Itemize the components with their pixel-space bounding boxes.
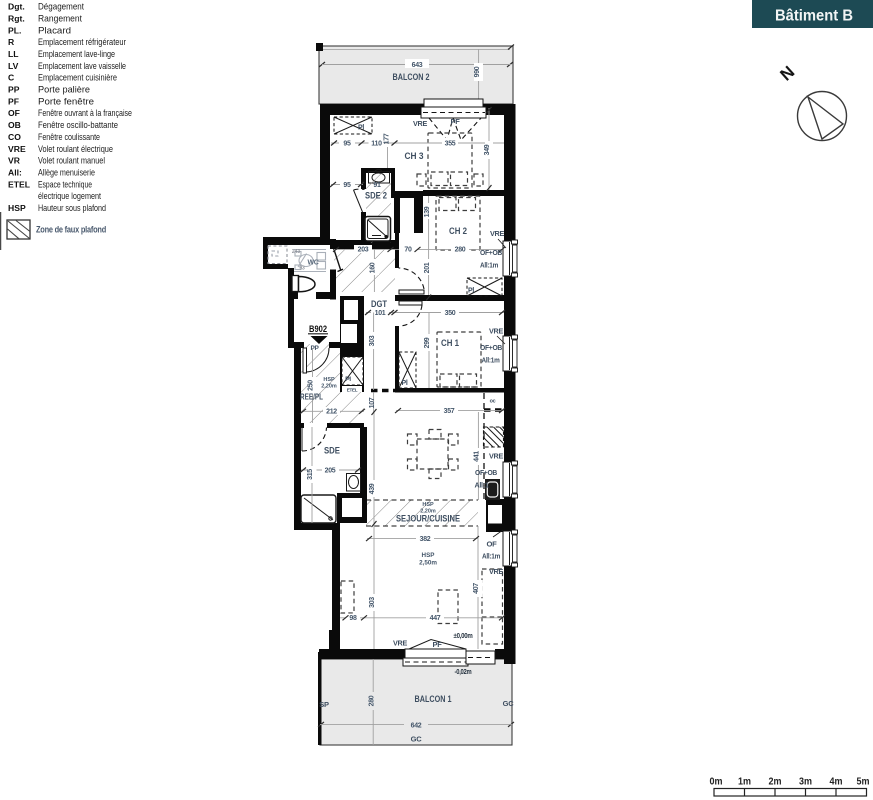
svg-text:407: 407	[473, 583, 480, 594]
svg-text:250: 250	[308, 380, 315, 391]
svg-text:447: 447	[430, 615, 441, 622]
svg-text:All:1m: All:1m	[482, 356, 501, 365]
svg-text:Placard: Placard	[38, 25, 71, 35]
svg-text:BALCON 2: BALCON 2	[393, 72, 430, 83]
svg-text:439: 439	[369, 483, 376, 494]
svg-text:électrique logement: électrique logement	[38, 191, 101, 201]
svg-text:WC: WC	[307, 260, 318, 267]
svg-text:VRE: VRE	[490, 229, 504, 238]
svg-text:350: 350	[445, 310, 456, 317]
svg-text:HSP: HSP	[323, 377, 335, 383]
svg-text:HSP: HSP	[422, 552, 435, 559]
svg-text:Fenêtre coulissante: Fenêtre coulissante	[38, 132, 100, 142]
svg-text:C: C	[8, 73, 14, 83]
svg-text:Pl: Pl	[345, 376, 351, 383]
svg-text:382: 382	[420, 536, 431, 543]
svg-text:PL.: PL.	[8, 25, 21, 35]
svg-text:643: 643	[412, 62, 423, 69]
svg-text:VRE: VRE	[413, 119, 427, 128]
svg-text:441: 441	[474, 451, 481, 462]
svg-text:SEJOUR/CUISINE: SEJOUR/CUISINE	[396, 514, 460, 525]
svg-text:3m: 3m	[799, 776, 812, 788]
svg-text:0m: 0m	[710, 776, 723, 788]
svg-text:357: 357	[444, 408, 455, 415]
svg-text:160: 160	[370, 262, 377, 273]
svg-text:HSP: HSP	[8, 203, 26, 213]
svg-text:All:1m: All:1m	[480, 261, 499, 270]
svg-text:Fenêtre ouvrant à la française: Fenêtre ouvrant à la française	[38, 108, 132, 118]
svg-text:PP: PP	[8, 85, 20, 95]
svg-text:201: 201	[424, 262, 431, 273]
svg-text:GC: GC	[411, 735, 423, 744]
svg-text:VRE: VRE	[393, 639, 407, 648]
svg-text:-0,02m: -0,02m	[455, 669, 472, 676]
svg-text:HSP: HSP	[422, 502, 434, 508]
svg-text:Allège menuiserie: Allège menuiserie	[38, 168, 95, 178]
svg-text:70: 70	[404, 247, 412, 254]
svg-text:Pl: Pl	[468, 288, 474, 295]
svg-text:Emplacement lave-linge: Emplacement lave-linge	[38, 49, 115, 59]
svg-text:107: 107	[369, 397, 376, 408]
svg-text:SP: SP	[319, 700, 329, 709]
svg-text:280: 280	[368, 695, 375, 706]
svg-text:VRE: VRE	[489, 452, 503, 461]
svg-text:303: 303	[369, 335, 376, 346]
svg-text:Pl: Pl	[358, 125, 364, 132]
svg-text:PF: PF	[8, 96, 19, 106]
svg-text:Pl: Pl	[401, 380, 407, 387]
svg-text:CH 1: CH 1	[441, 338, 460, 349]
svg-text:2,20m: 2,20m	[321, 384, 337, 390]
svg-text:98: 98	[349, 615, 357, 622]
svg-text:REE/PL: REE/PL	[300, 392, 323, 402]
svg-text:ETEL: ETEL	[347, 387, 358, 392]
svg-text:110: 110	[371, 140, 382, 147]
svg-text:Volet roulant manuel: Volet roulant manuel	[38, 156, 105, 166]
svg-text:95: 95	[343, 182, 351, 189]
svg-text:OF+OB: OF+OB	[480, 248, 503, 257]
svg-text:PP: PP	[310, 345, 319, 352]
svg-text:280: 280	[455, 247, 466, 254]
svg-text:Porte fenêtre: Porte fenêtre	[38, 96, 94, 106]
svg-text:Emplacement cuisinière: Emplacement cuisinière	[38, 73, 117, 83]
svg-text:Porte palière: Porte palière	[38, 85, 90, 95]
svg-text:CH 2: CH 2	[449, 226, 467, 237]
svg-text:CO: CO	[8, 132, 21, 142]
svg-text:Hauteur sous plafond: Hauteur sous plafond	[38, 203, 106, 213]
svg-text:PF: PF	[451, 117, 461, 126]
svg-text:101: 101	[375, 310, 386, 317]
svg-text:LL: LL	[8, 49, 19, 59]
svg-text:ETEL: ETEL	[8, 179, 30, 189]
svg-text:Rangement: Rangement	[38, 13, 82, 23]
svg-text:299: 299	[424, 337, 431, 348]
svg-text:93: 93	[299, 266, 305, 272]
svg-text:OF: OF	[8, 108, 20, 118]
svg-text:BALCON 1: BALCON 1	[415, 694, 453, 705]
svg-text:LV: LV	[8, 61, 19, 71]
svg-text:Rgt.: Rgt.	[8, 13, 25, 23]
svg-text:355: 355	[445, 140, 456, 147]
svg-text:243: 243	[292, 249, 301, 255]
svg-text:Espace technique: Espace technique	[38, 179, 92, 189]
svg-text:1m: 1m	[738, 776, 751, 788]
svg-text:642: 642	[411, 723, 422, 730]
svg-text:±0,00m: ±0,00m	[454, 633, 473, 640]
svg-text:205: 205	[325, 467, 336, 474]
svg-text:315: 315	[307, 469, 314, 480]
svg-text:DGT: DGT	[371, 299, 387, 310]
svg-text:SDE: SDE	[324, 446, 340, 457]
svg-text:4m: 4m	[830, 776, 843, 788]
svg-text:OF+OB: OF+OB	[480, 343, 503, 352]
svg-text:All:: All:	[8, 168, 22, 178]
svg-text:OB: OB	[8, 120, 21, 130]
svg-text:95: 95	[343, 140, 351, 147]
svg-text:All:1m: All:1m	[482, 552, 501, 561]
svg-text:203: 203	[358, 247, 369, 254]
svg-text:Bâtiment B: Bâtiment B	[775, 8, 853, 25]
svg-text:All:1: All:1	[475, 481, 489, 490]
svg-text:GC: GC	[503, 699, 515, 708]
svg-text:Dégagement: Dégagement	[38, 2, 84, 12]
svg-text:oc: oc	[490, 399, 496, 405]
svg-text:VRE: VRE	[489, 327, 503, 336]
svg-text:VR: VR	[8, 156, 21, 166]
svg-text:R: R	[8, 37, 15, 47]
svg-text:Emplacement lave vaisselle: Emplacement lave vaisselle	[38, 61, 126, 71]
svg-text:91: 91	[373, 182, 381, 189]
svg-text:990: 990	[474, 66, 481, 77]
svg-text:2,50m: 2,50m	[419, 560, 437, 567]
svg-text:OF: OF	[487, 540, 498, 549]
svg-text:303: 303	[369, 597, 376, 608]
svg-text:Fenêtre oscillo-battante: Fenêtre oscillo-battante	[38, 120, 118, 130]
svg-text:139: 139	[424, 206, 431, 217]
svg-text:349: 349	[484, 144, 491, 155]
svg-text:5m: 5m	[857, 776, 870, 788]
svg-text:OF+OB: OF+OB	[475, 468, 498, 477]
svg-text:177: 177	[384, 133, 391, 144]
svg-text:B902: B902	[309, 324, 327, 334]
svg-text:212: 212	[326, 409, 337, 416]
svg-text:VRE: VRE	[8, 144, 26, 154]
svg-text:SDE 2: SDE 2	[365, 191, 387, 202]
svg-text:2,20m: 2,20m	[420, 509, 436, 515]
svg-text:VRE: VRE	[489, 567, 503, 576]
svg-text:Dgt.: Dgt.	[8, 2, 25, 12]
svg-text:Zone de faux plafond: Zone de faux plafond	[36, 225, 106, 236]
svg-text:Volet roulant électrique: Volet roulant électrique	[38, 144, 113, 154]
svg-text:Emplacement réfrigérateur: Emplacement réfrigérateur	[38, 37, 126, 47]
svg-text:PF: PF	[433, 640, 443, 649]
svg-text:CH 3: CH 3	[405, 151, 424, 162]
svg-text:2m: 2m	[769, 776, 782, 788]
